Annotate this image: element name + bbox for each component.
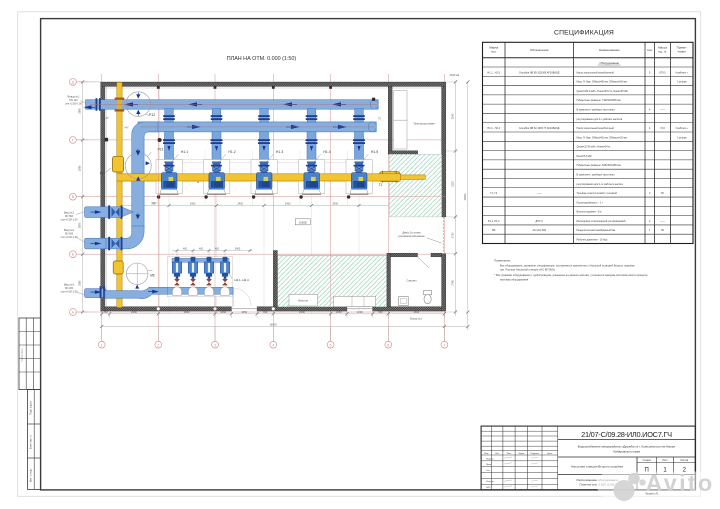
svg-text:Р12: Р12 (149, 113, 155, 117)
svg-text:Grundfos NB 65-315/308 AF2ABAQ: Grundfos NB 65-315/308 AF2ABAQE (519, 71, 560, 74)
svg-text:В комплекте: приборы частотног: В комплекте: приборы частотного (577, 173, 616, 176)
svg-text:400: 400 (183, 247, 188, 250)
svg-text:Ввод №1: Ввод №1 (64, 212, 75, 215)
svg-text:DN 500: DN 500 (65, 232, 74, 235)
svg-text:Дата: Дата (547, 453, 553, 455)
svg-text:Изм: Изм (484, 453, 489, 455)
svg-text:отм +0.60/-1.00: отм +0.60/-1.00 (61, 290, 79, 293)
svg-text:Мощ. N. Вар. DN(вх)=50 мм, DN(: Мощ. N. Вар. DN(вх)=50 мм, DN(вых)=32 мм… (577, 136, 628, 139)
svg-text:поз.: поз. (491, 50, 497, 54)
svg-text:2: 2 (157, 343, 159, 347)
svg-text:2400: 2400 (332, 202, 338, 205)
svg-text:Р1.1, Р1.2: Р1.1, Р1.2 (488, 220, 500, 223)
svg-text:Листов: Листов (680, 459, 688, 462)
svg-text:Г2: Г2 (100, 172, 104, 176)
svg-text:7: 7 (443, 343, 445, 347)
svg-text:Тельфер электрический с тележк: Тельфер электрический с тележкой (577, 192, 618, 195)
svg-text:3240: 3240 (452, 113, 455, 119)
svg-text:3120: 3120 (452, 181, 455, 187)
svg-text:DN 500: DN 500 (65, 215, 74, 218)
svg-text:Сог.: Сог. (486, 470, 490, 472)
svg-text:2880: 2880 (79, 280, 82, 286)
svg-text:Подп. и дата: Подп. и дата (31, 401, 33, 415)
svg-text:DN 200: DN 200 (65, 287, 74, 290)
svg-text:Пров.: Пров. (486, 464, 492, 466)
svg-text:СПЕЦИФИКАЦИЯ: СПЕЦИФИКАЦИЯ (554, 30, 614, 37)
svg-text:деревянная распашная: деревянная распашная (398, 235, 425, 238)
svg-text:М6: М6 (150, 274, 155, 278)
svg-text:Оборудование: Оборудование (599, 61, 619, 65)
svg-text:Мощ. N. Вар. DN(вх)=80 мм, DN(: Мощ. N. Вар. DN(вх)=80 мм, DN(вых)=65 мм… (577, 81, 628, 84)
svg-text:Grundfos NB 32-160/177 AF2ABAQ: Grundfos NB 32-160/177 AF2ABAQE (519, 127, 560, 130)
svg-text:ПЛАН НА ОТМ. 0.000 (1:50): ПЛАН НА ОТМ. 0.000 (1:50) (227, 56, 297, 62)
svg-text:Qном=22.90 м3/ч, Hном=34 м,: Qном=22.90 м3/ч, Hном=34 м, (577, 146, 611, 149)
svg-text:72.0: 72.0 (660, 127, 665, 130)
svg-text:Nном=5.5 кВт: Nном=5.5 кВт (577, 155, 593, 158)
svg-text:отм +2.50/-1.00: отм +2.50/-1.00 (65, 102, 83, 105)
svg-text:Ввод №3: Ввод №3 (64, 284, 75, 287)
svg-text:Avito: Avito (646, 470, 715, 496)
svg-text:ч4б°: ч4б° (124, 127, 129, 129)
svg-text:400: 400 (199, 247, 204, 250)
svg-text:Н1.3: Н1.3 (276, 150, 283, 154)
svg-text:ГИП: ГИП (486, 487, 491, 489)
svg-text:5: 5 (330, 343, 332, 347)
svg-text:Н1.5: Н1.5 (371, 150, 378, 154)
svg-text:2880: 2880 (79, 222, 82, 228)
svg-text:ч4б°: ч4б° (151, 203, 156, 205)
svg-text:1 резерв: 1 резерв (677, 137, 687, 139)
svg-text:Расходомер стационарный ультра: Расходомер стационарный ультразвуковой (577, 220, 627, 223)
svg-text:регулирования для 1-го рабочег: регулирования для 1-го рабочего насоса (577, 183, 624, 186)
svg-text:ДНУ-С: ДНУ-С (536, 220, 544, 223)
svg-text:Марка: Марка (489, 46, 498, 50)
svg-text:3: 3 (214, 343, 216, 347)
svg-text:1: 1 (101, 343, 103, 347)
svg-text:Согласовано: Согласовано (22, 348, 24, 362)
svg-text:0.000: 0.000 (299, 220, 307, 224)
svg-text:400: 400 (215, 247, 220, 250)
svg-text:М6: М6 (492, 229, 496, 232)
svg-text:2880: 2880 (79, 108, 82, 114)
svg-text:2760: 2760 (452, 279, 455, 285)
svg-text:4х4 (2х) 600: 4х4 (2х) 600 (533, 229, 547, 232)
svg-text:2400: 2400 (285, 202, 291, 205)
svg-text:Насосная станция Второго подъё: Насосная станция Второго подъёма (571, 465, 623, 469)
svg-text:Водоснабжение микрорайона «Дру: Водоснабжение микрорайона «Дружба» в г. … (578, 444, 676, 448)
svg-text:Обозначение: Обозначение (530, 48, 549, 52)
svg-text:регулирования для 4-х рабочих: регулирования для 4-х рабочих насосов (577, 118, 623, 121)
svg-text:ч4б°: ч4б° (104, 118, 109, 120)
svg-text:10900: 10900 (464, 193, 467, 201)
svg-text:4 рабочих +: 4 рабочих + (675, 72, 688, 74)
svg-text:6: 6 (387, 343, 389, 347)
svg-text:4: 4 (272, 343, 274, 347)
svg-text:——: —— (660, 220, 666, 223)
svg-text:Стадия: Стадия (643, 459, 652, 462)
svg-text:чание: чание (678, 50, 687, 54)
svg-text:Вывод №1: Вывод №1 (68, 96, 80, 99)
svg-text:Выход №1: Выход №1 (410, 318, 422, 321)
svg-text:отм +0.50/-1.00: отм +0.50/-1.00 (61, 218, 79, 221)
svg-text:21/07-С/09.28-ИЛ0.ИОС7.ГЧ: 21/07-С/09.28-ИЛ0.ИОС7.ГЧ (581, 430, 672, 439)
svg-text:Разделительный мембранный бак: Разделительный мембранный бак (577, 229, 617, 232)
svg-text:Грузоподъёмность - 1 т: Грузоподъёмность - 1 т (577, 201, 604, 204)
svg-text:Н1.2: Н1.2 (228, 150, 235, 154)
svg-text:2400: 2400 (237, 202, 243, 205)
svg-text:ед., кг: ед., кг (658, 50, 666, 54)
svg-text:1 резерв: 1 резерв (677, 82, 687, 84)
svg-text:Насос консольный моноблочный: Насос консольный моноблочный (577, 71, 615, 74)
svg-text:679.0: 679.0 (659, 71, 666, 74)
svg-text:Р11: Р11 (158, 148, 164, 152)
svg-text:Наименование: Наименование (599, 48, 620, 52)
svg-text:Qном=183.9 м3/ч, Hном=93.2 м,: Qном=183.9 м3/ч, Hном=93.2 м, Nном=90 кВ… (577, 90, 629, 93)
svg-text:3 рабочих +: 3 рабочих + (675, 128, 688, 130)
svg-text:Лист: Лист (662, 459, 668, 462)
svg-text:Подпись: Подпись (531, 453, 541, 455)
svg-text:Кол: Кол (647, 48, 652, 52)
svg-text:Дверь 2го этажа: Дверь 2го этажа (402, 232, 421, 235)
svg-text:2880: 2880 (79, 165, 82, 171)
svg-text:1750: 1750 (452, 232, 455, 238)
svg-text:DN 100: DN 100 (69, 99, 78, 102)
svg-text:Верстак: Верстак (299, 300, 309, 303)
svg-text:Н1.1...Н1.5: Н1.1...Н1.5 (487, 71, 500, 74)
svg-text:——: —— (660, 108, 666, 111)
svg-text:Г1, Г2: Г1, Г2 (490, 192, 497, 195)
svg-text:Габаритные размеры: 740х500х50: Габаритные размеры: 740х500х505 мм (577, 99, 621, 102)
svg-text:Н1.1: Н1.1 (181, 150, 188, 154)
svg-text:2400: 2400 (235, 247, 241, 250)
svg-text:Н.контр: Н.контр (486, 481, 495, 483)
svg-text:Н1.4: Н1.4 (323, 150, 330, 154)
svg-text:Г: Г (72, 138, 74, 142)
svg-text:Н2.1..Н2.4: Н2.1..Н2.4 (234, 278, 249, 282)
svg-text:Приме-: Приме- (677, 46, 687, 50)
svg-text:2400: 2400 (190, 202, 196, 205)
svg-text:отм +0.50/-1.00: отм +0.50/-1.00 (61, 236, 79, 239)
svg-text:——: —— (537, 192, 542, 195)
svg-text:Рабочее давление - 16 бар: Рабочее давление - 16 бар (577, 239, 608, 242)
svg-text:Ввод №2: Ввод №2 (64, 229, 75, 232)
svg-text:Г1: Г1 (379, 183, 383, 187)
svg-text:Разраб: Разраб (486, 458, 494, 460)
svg-text:Н2.1...Н2.4: Н2.1...Н2.4 (487, 127, 500, 130)
svg-text:Масса: Масса (658, 46, 667, 50)
svg-text:Лист: Лист (507, 453, 512, 455)
svg-text:Габаритные размеры: 545х300х29: Габаритные размеры: 545х300х295 мм (577, 164, 621, 167)
svg-text:Хабаровского края: Хабаровского края (613, 449, 640, 453)
svg-text:В комплекте: приборы частотног: В комплекте: приборы частотного (577, 108, 616, 111)
svg-text:Насос консольный моноблочный: Насос консольный моноблочный (577, 127, 615, 130)
svg-text:Высота подъёма - 3 м: Высота подъёма - 3 м (577, 211, 602, 214)
